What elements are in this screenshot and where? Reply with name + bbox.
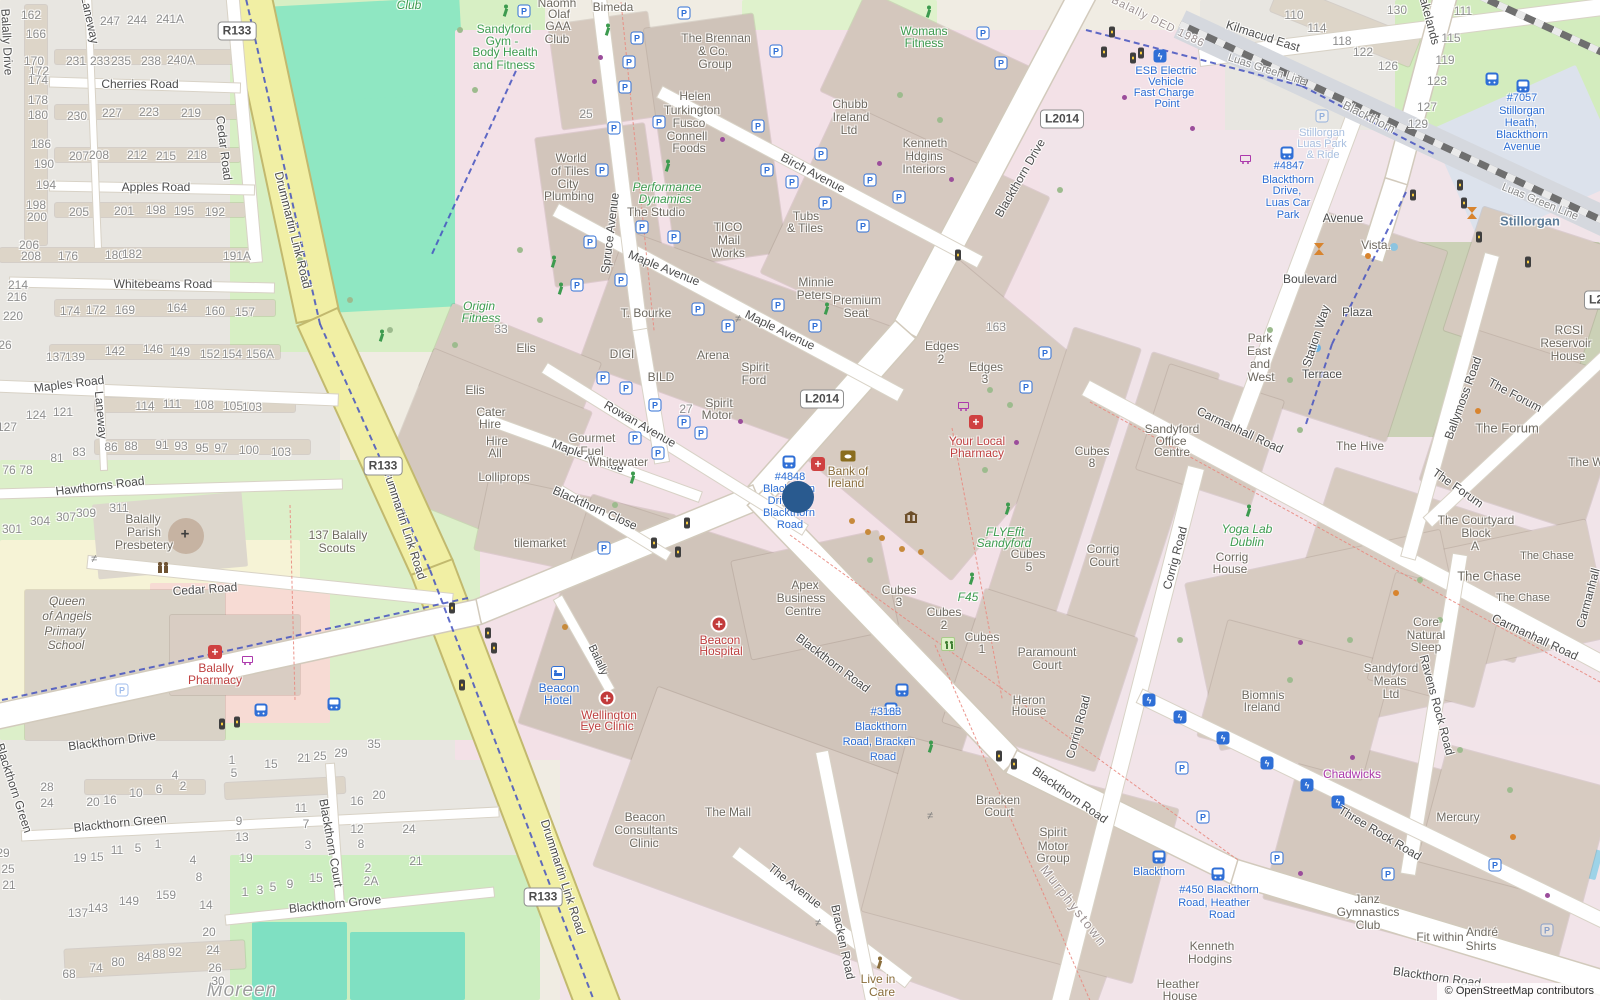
housenumber-label: 27 (679, 402, 692, 416)
place-label: and (1250, 357, 1270, 371)
place-label: All (488, 446, 501, 460)
ev-icon: ϟ (1154, 50, 1167, 63)
place-label: Stillorgan (1500, 214, 1560, 229)
gate-icon: ≠ (815, 917, 821, 929)
place-label: Ireland (828, 476, 865, 490)
housenumber-label: 220 (3, 309, 23, 323)
housenumber-label: 190 (34, 157, 54, 171)
housenumber-label: 137 (68, 906, 88, 920)
place-label: and Fitness (473, 58, 535, 72)
p-icon[interactable]: P (652, 447, 665, 460)
place-label: Interiors (902, 162, 945, 176)
transit-label: #3183 (871, 706, 902, 718)
housenumber-label: 230 (67, 109, 87, 123)
map-attribution[interactable]: © OpenStreetMap contributors (1437, 983, 1600, 1000)
runner-icon (1002, 503, 1012, 516)
p-icon[interactable]: P (1020, 381, 1033, 394)
place-label: Kenneth (903, 136, 948, 150)
p-icon[interactable]: P (786, 176, 799, 189)
tree-dot (1297, 427, 1303, 433)
p-icon[interactable]: P (518, 5, 531, 18)
transit-label: Blackthorn (1133, 866, 1185, 878)
street-label: Apples Road (122, 180, 191, 194)
p-icon[interactable]: P (772, 299, 785, 312)
street-label: Avenue (1323, 211, 1363, 225)
housenumber-label: 5 (135, 841, 142, 855)
gate-icon: ≠ (927, 810, 933, 822)
housenumber-label: 241A (156, 12, 184, 26)
housenumber-label: 92 (168, 945, 181, 959)
place-label: The Courtyard (1438, 513, 1515, 527)
housenumber-label: 1 (242, 885, 249, 899)
housenumber-label: 124 (26, 408, 46, 422)
p-icon[interactable]: P (1489, 859, 1502, 872)
place-label: Kenneth (1190, 939, 1235, 953)
p-icon[interactable]: P (678, 7, 691, 20)
housenumber-label: 2 (180, 779, 187, 793)
poi-dot (918, 549, 924, 555)
housenumber-label: 174 (60, 304, 80, 318)
p-icon[interactable]: P (678, 416, 691, 429)
p-icon[interactable]: P (571, 279, 584, 292)
bus-icon[interactable] (1281, 147, 1294, 160)
place-label: Fitness (905, 36, 944, 50)
housenumber-label: 121 (53, 405, 73, 419)
place-label: tilemarket (514, 536, 566, 550)
transit-label: Hotel (544, 693, 572, 707)
place-label: Ireland (833, 110, 870, 124)
place-label: Court (1089, 555, 1118, 569)
p-icon[interactable]: P (584, 236, 597, 249)
p-icon[interactable]: P (722, 320, 735, 333)
tree-dot (537, 317, 543, 323)
place-label: A (1471, 539, 1479, 553)
place-label: Parish (127, 525, 161, 539)
housenumber-label: 198 (146, 203, 166, 217)
bus-icon[interactable] (1486, 73, 1499, 86)
housenumber-label: 19 (73, 851, 86, 865)
transit-label: #4847 (1274, 160, 1305, 172)
housenumber-label: 149 (170, 345, 190, 359)
place-label: East (1247, 344, 1271, 358)
bus-icon[interactable] (328, 698, 341, 711)
housenumber-label: 114 (135, 399, 154, 413)
housenumber-label: 174 (28, 73, 48, 87)
poi-dot (1545, 893, 1550, 898)
bus-icon[interactable] (1153, 851, 1166, 864)
housenumber-label: 139 (65, 350, 85, 364)
p-icon[interactable]: P (668, 231, 681, 244)
p-icon[interactable]: P (1382, 868, 1395, 881)
housenumber-label: 200 (27, 210, 47, 224)
housenumber-label: 6 (156, 782, 163, 796)
tree-dot (1177, 637, 1183, 643)
housenumber-label: 16 (103, 793, 116, 807)
transit-label: Road (870, 751, 896, 763)
p-icon[interactable]: P (761, 164, 774, 177)
poi-dot (865, 529, 871, 535)
housenumber-label: 127 (0, 420, 17, 434)
place-label: Queen (49, 594, 85, 608)
housenumber-label: 163 (986, 320, 1006, 334)
transit-label: #7057 (1507, 92, 1538, 104)
gate-icon: ≠ (91, 553, 97, 565)
place-label: Edges (925, 339, 959, 353)
runner-icon (376, 330, 386, 343)
tree-dot (387, 327, 393, 333)
housenumber-label: 83 (72, 445, 85, 459)
housenumber-label: 127 (1417, 100, 1437, 114)
traffic-icon (1109, 27, 1115, 38)
gate-icon: ≠ (735, 313, 741, 325)
runner-icon (662, 160, 672, 173)
bus-icon[interactable] (1212, 868, 1225, 881)
route-shield: L2 (1584, 291, 1600, 310)
place-label: Fusco (673, 116, 706, 130)
place-label: Corrig (1087, 542, 1120, 556)
pharmacy-icon: + (811, 457, 825, 471)
housenumber-label: 20 (202, 925, 215, 939)
housenumber-label: 100 (239, 443, 259, 457)
place-label: & Tiles (787, 221, 823, 235)
street-label: Terrace (1302, 367, 1342, 381)
tree-dot (517, 247, 523, 253)
place-label: & Ride (1306, 149, 1339, 161)
bank-icon (841, 451, 856, 462)
housenumber-label: 110 (1284, 8, 1303, 22)
housenumber-label: 244 (127, 13, 147, 27)
landuse-area (350, 932, 465, 1000)
place-label: House (1012, 704, 1047, 718)
p-icon[interactable]: P (1176, 762, 1189, 775)
housenumber-label: 160 (205, 304, 225, 318)
traffic-icon (1138, 48, 1144, 59)
traffic-icon (449, 603, 455, 614)
p-icon[interactable]: P (649, 399, 662, 412)
livecare-icon (874, 957, 884, 970)
housenumber-label: 88 (124, 439, 137, 453)
place-label: RCSI (1555, 323, 1584, 337)
traffic-icon (955, 250, 961, 261)
ev-icon: ϟ (1217, 732, 1230, 745)
housenumber-label: 235 (111, 54, 131, 68)
place-label: Court (984, 805, 1013, 819)
housenumber-label: 24 (40, 796, 53, 810)
p-icon[interactable]: P (692, 303, 705, 316)
place-label: Premium (833, 293, 881, 307)
housenumber-label: 309 (76, 506, 96, 520)
bus-icon[interactable] (255, 704, 268, 717)
housenumber-label: 156A (246, 347, 274, 361)
p-icon[interactable]: P (695, 427, 708, 440)
transit-label: Avenue (1503, 141, 1540, 153)
place-label: & Co. (698, 44, 728, 58)
housenumber-label: 5 (231, 766, 238, 780)
place-label: The Chase (1496, 592, 1550, 604)
ev-icon: ϟ (1261, 757, 1274, 770)
place-label: Elis (465, 383, 484, 397)
p-icon[interactable]: P (615, 274, 628, 287)
housenumber-label: 81 (50, 451, 63, 465)
tree-dot (1457, 747, 1463, 753)
p-icon[interactable]: P (1039, 347, 1052, 360)
housenumber-label: 29 (0, 846, 10, 860)
p-icon[interactable]: P (631, 32, 644, 45)
housenumber-label: 21 (297, 751, 310, 765)
transit-label: Blackthorn (855, 721, 907, 733)
p-icon[interactable]: P (977, 27, 990, 40)
bus-icon[interactable] (783, 456, 796, 469)
p-icon[interactable]: P (629, 432, 642, 445)
housenumber-label: 97 (214, 441, 227, 455)
p-icon[interactable]: P (815, 148, 828, 161)
place-label: Ford (742, 373, 767, 387)
p-icon[interactable]: P (596, 164, 609, 177)
housenumber-label: 194 (36, 178, 56, 192)
poi-dot (1014, 440, 1019, 445)
place-label: Mercury (1436, 810, 1479, 824)
place-label: Peters (797, 288, 832, 302)
housenumber-label: 169 (115, 303, 135, 317)
p-icon[interactable]: P (598, 542, 611, 555)
housenumber-label: 103 (242, 400, 262, 414)
p-icon[interactable]: P (995, 57, 1008, 70)
traffic-icon (996, 751, 1002, 762)
street-label: Whitebeams Road (114, 277, 213, 291)
ev-icon: ϟ (1143, 694, 1156, 707)
traffic-icon (491, 643, 497, 654)
place-label: Business (777, 591, 826, 605)
poi-dot (598, 55, 603, 60)
housenumber-label: 215 (156, 149, 176, 163)
housenumber-label: 88 (152, 947, 165, 961)
street-label: Cherries Road (101, 77, 178, 91)
housenumber-label: 114 (1307, 21, 1326, 35)
place-label: The Studio (627, 205, 685, 219)
place-label: Minnie (798, 275, 833, 289)
housenumber-label: 111 (163, 397, 181, 411)
transit-label: Road (777, 519, 803, 531)
housenumber-label: 15 (90, 850, 103, 864)
traffic-icon (1525, 257, 1531, 268)
housenumber-label: 186 (31, 137, 51, 151)
housenumber-label: 35 (367, 737, 380, 751)
housenumber-label: 126 (1378, 59, 1398, 73)
place-label: Whitewater (588, 455, 648, 469)
ev-icon: ϟ (1174, 711, 1187, 724)
place-label: Cubes (927, 605, 962, 619)
place-label: The Chase (1457, 569, 1521, 584)
tree-dot (867, 557, 873, 563)
housenumber-label: 9 (287, 877, 294, 891)
place-label: Club (397, 0, 422, 12)
poi-dot (949, 177, 954, 182)
poi-dot (849, 518, 855, 524)
place-label: Balally (125, 512, 160, 526)
housenumber-label: 13 (235, 830, 248, 844)
p-icon[interactable]: P (636, 221, 649, 234)
pharmacy-icon: + (969, 415, 983, 429)
hourglass-icon (1314, 243, 1324, 255)
housenumber-label: 154 (222, 347, 242, 361)
place-label: Spirit (1039, 825, 1066, 839)
place-label: of Tiles (551, 164, 589, 178)
place-label: Gymnastics (1337, 905, 1400, 919)
housenumber-label: 10 (129, 786, 142, 800)
map-viewport[interactable]: PPPPPPPPPPPPPPPPPPPPPPPPPPPPPPPPPPPPPPPP… (0, 0, 1600, 1000)
transit-label: Heath, (1505, 117, 1537, 129)
housenumber-label: 152 (200, 347, 220, 361)
place-label: Sandyford (977, 536, 1032, 550)
housenumber-label: 223 (139, 105, 159, 119)
p-icon[interactable]: P (857, 220, 870, 233)
p-icon[interactable]: P (864, 174, 877, 187)
place-label: 137 Balally (309, 528, 368, 542)
p-icon[interactable]: P (809, 320, 822, 333)
housenumber-label: 24 (402, 822, 415, 836)
place-label: Fit within (1416, 930, 1463, 944)
traffic-icon (1410, 190, 1416, 201)
housenumber-label: 9 (236, 814, 243, 828)
traffic-icon (675, 547, 681, 558)
tree-dot (982, 467, 988, 473)
housenumber-label: 7 (303, 817, 310, 831)
place-label: Chadwicks (1323, 767, 1381, 781)
housenumber-label: 201 (114, 204, 134, 218)
place-label: Clinic (629, 836, 658, 850)
place-label: Group (1036, 851, 1069, 865)
place-label: Yoga Lab (1222, 522, 1273, 536)
p-icon[interactable]: P (1271, 852, 1284, 865)
p-icon[interactable]: P (1197, 811, 1210, 824)
housenumber-label: 4 (172, 768, 179, 782)
poi-dot (592, 79, 597, 84)
housenumber-label: 25 (1, 862, 14, 876)
housenumber-label: 238 (141, 54, 161, 68)
p-icon[interactable]: P (819, 197, 832, 210)
p-icon[interactable]: P (653, 116, 666, 129)
bus-icon[interactable] (896, 684, 909, 697)
place-label: The Brennan (681, 31, 750, 45)
place-label: 2 (941, 618, 948, 632)
place-label: Pharmacy (188, 673, 242, 687)
housenumber-label: 115 (1441, 31, 1460, 45)
transit-label: Blackthorn (1496, 129, 1548, 141)
people-icon (156, 562, 170, 574)
housenumber-label: 219 (181, 106, 201, 120)
transit-label: Luas Car (1266, 197, 1311, 209)
housenumber-label: 19 (239, 851, 252, 865)
p-icon[interactable]: P (893, 191, 906, 204)
housenumber-label: 30 (211, 974, 224, 988)
place-label: André (1466, 925, 1498, 939)
traffic-icon (485, 628, 491, 639)
place-label: Vista. (1361, 238, 1391, 252)
p-icon[interactable]: P (752, 120, 765, 133)
housenumber-label: 8 (358, 837, 365, 851)
traffic-icon (684, 518, 690, 529)
transit-label: Road (1209, 909, 1235, 921)
place-label: Hospital (699, 644, 742, 658)
p-icon[interactable]: P (116, 684, 129, 697)
transit-label: Point (1154, 98, 1179, 110)
housenumber-label: 108 (194, 398, 214, 412)
housenumber-label: 3 (305, 838, 312, 852)
place-label: Plumbing (544, 189, 594, 203)
housenumber-label: 2 (365, 861, 372, 875)
place-label: Pharmacy (950, 446, 1004, 460)
housenumber-label: 172 (86, 303, 106, 317)
housenumber-label: 122 (1353, 45, 1373, 59)
housenumber-label: 166 (26, 27, 46, 41)
housenumber-label: 8 (196, 870, 203, 884)
location-marker[interactable] (782, 481, 814, 513)
bus-icon[interactable] (1517, 80, 1530, 93)
housenumber-label: 80 (111, 955, 124, 969)
p-icon[interactable]: P (597, 372, 610, 385)
p-icon[interactable]: P (619, 81, 632, 94)
place-label: Apex (791, 578, 818, 592)
runner-icon (966, 573, 976, 586)
place-label: Group (698, 57, 731, 71)
housenumber-label: 207 (69, 149, 89, 163)
p-icon[interactable]: P (1316, 110, 1329, 123)
tree-dot (452, 342, 458, 348)
cart-icon (1239, 154, 1251, 164)
p-icon[interactable]: P (1541, 924, 1554, 937)
runner-icon (548, 256, 558, 269)
traffic-icon (1101, 47, 1107, 58)
place-label: TICO (714, 220, 743, 234)
traffic-icon (1457, 180, 1463, 191)
traffic-icon (1476, 232, 1482, 243)
place-label: Turkington (664, 103, 720, 117)
place-label: 1 (979, 642, 986, 656)
p-icon[interactable]: P (608, 122, 621, 135)
housenumber-label: 159 (156, 888, 176, 902)
place-label: School (48, 638, 85, 652)
place-label: Elis (516, 341, 535, 355)
place-label: BILD (648, 370, 675, 384)
housenumber-label: 103 (271, 445, 291, 459)
runner-icon (627, 472, 637, 485)
place-label: Sleep (1411, 640, 1442, 654)
route-shield: L2014 (800, 390, 844, 409)
poi-dot (1475, 408, 1481, 414)
place-label: Park (1248, 331, 1273, 345)
transit-label: Park (1277, 209, 1300, 221)
housenumber-label: 12 (350, 822, 363, 836)
housenumber-label: 307 (56, 510, 76, 524)
housenumber-label: 301 (2, 522, 22, 536)
route-shield: R133 (524, 888, 563, 907)
ev-icon: ϟ (1301, 779, 1314, 792)
place-label: GAA (545, 19, 570, 33)
housenumber-label: 105 (223, 399, 243, 413)
place-label: 3 (896, 595, 903, 609)
p-icon[interactable]: P (770, 45, 783, 58)
poi-dot (1298, 640, 1303, 645)
place-label: Dynamics (639, 192, 692, 206)
housenumber-label: 216 (7, 290, 27, 304)
poi-dot (738, 419, 743, 424)
traffic-icon (1130, 53, 1136, 64)
place-label: Dublin (1230, 535, 1264, 549)
p-icon[interactable]: P (623, 56, 636, 69)
poi-dot (1298, 871, 1303, 876)
p-icon[interactable]: P (620, 382, 633, 395)
tree-dot (347, 297, 353, 303)
